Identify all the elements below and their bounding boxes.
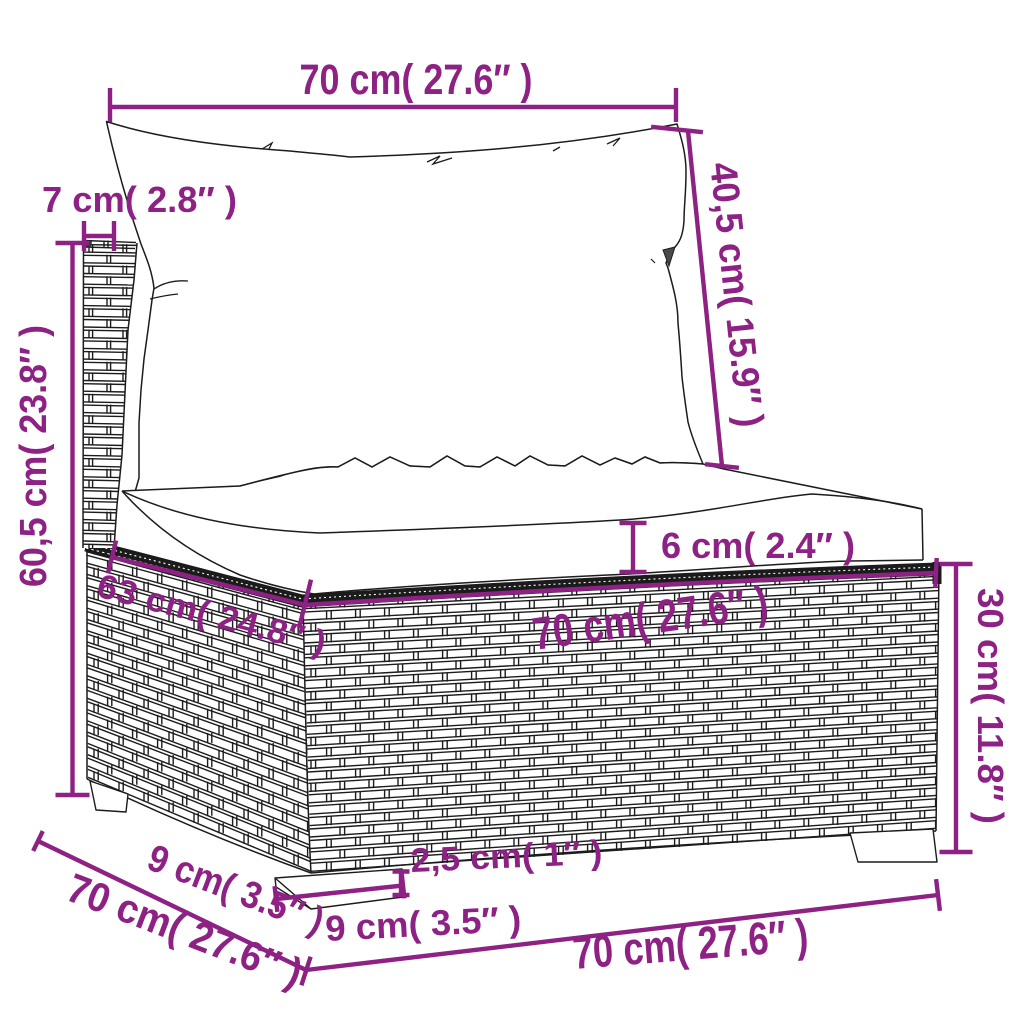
svg-text:6 cm( 2.4″ ): 6 cm( 2.4″ ) <box>661 525 855 566</box>
svg-text:30 cm( 11.8″ ): 30 cm( 11.8″ ) <box>970 588 1011 824</box>
svg-text:7 cm( 2.8″ ): 7 cm( 2.8″ ) <box>42 179 237 220</box>
svg-text:60,5 cm( 23.8″ ): 60,5 cm( 23.8″ ) <box>13 325 55 587</box>
svg-text:70 cm( 27.6″ ): 70 cm( 27.6″ ) <box>300 56 533 104</box>
